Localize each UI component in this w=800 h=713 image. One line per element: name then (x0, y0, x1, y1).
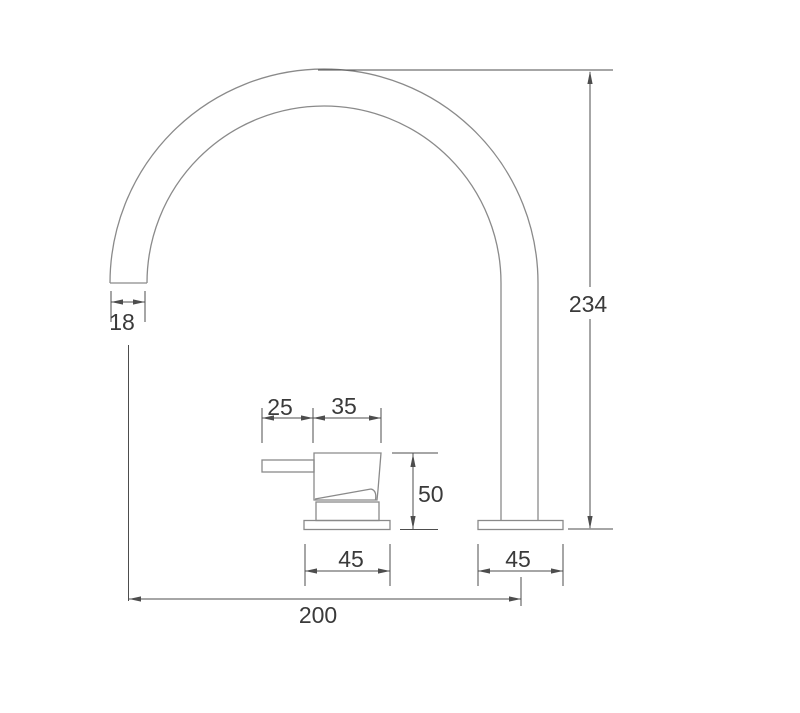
tap-outline (110, 69, 563, 529)
dim-label-overall-height: 234 (569, 291, 608, 317)
arrowhead-right (369, 415, 381, 420)
dim-label-spout-base-width: 45 (505, 546, 531, 572)
handle-base-plate (304, 521, 390, 530)
arrowhead-left (478, 568, 490, 573)
dimension-overall-height: 234 (318, 70, 613, 529)
handle-cartridge (316, 502, 379, 521)
dimension-handle-height: 50 (392, 453, 444, 530)
dim-label-spout-reach: 200 (299, 602, 337, 628)
arrowhead-right (378, 568, 390, 573)
arrowhead-up (410, 454, 415, 467)
dimension-handle-base-width: 45 (305, 544, 390, 586)
arrowhead-up (587, 71, 592, 84)
arrowhead-down (410, 516, 415, 529)
drawing-stage: 18 234 25 35 (0, 0, 800, 713)
arrowhead-right (509, 596, 521, 601)
spout-base-plate (478, 521, 563, 530)
dimension-lever-length: 25 (262, 394, 313, 443)
arrowhead-left (129, 596, 141, 601)
dimension-spout-tip-width: 18 (109, 291, 145, 335)
arrowhead-left (305, 568, 317, 573)
dim-label-handle-body-width: 35 (331, 393, 357, 419)
dim-label-handle-height: 50 (418, 481, 444, 507)
tap-technical-drawing: 18 234 25 35 (0, 0, 800, 713)
dimension-handle-body-width: 35 (313, 393, 381, 443)
arrowhead-down (587, 516, 592, 529)
arrowhead-right (133, 299, 145, 304)
handle-body-seam (315, 489, 376, 500)
dimension-spout-reach: 200 (129, 345, 522, 628)
dim-label-handle-base-width: 45 (338, 546, 364, 572)
arrowhead-left (313, 415, 325, 420)
handle-lever (262, 460, 314, 472)
dim-label-lever-length: 25 (267, 394, 293, 420)
arrowhead-right (551, 568, 563, 573)
arrowhead-left (111, 299, 123, 304)
dim-label-spout-tip-width: 18 (109, 309, 135, 335)
arrowhead-right (301, 415, 313, 420)
